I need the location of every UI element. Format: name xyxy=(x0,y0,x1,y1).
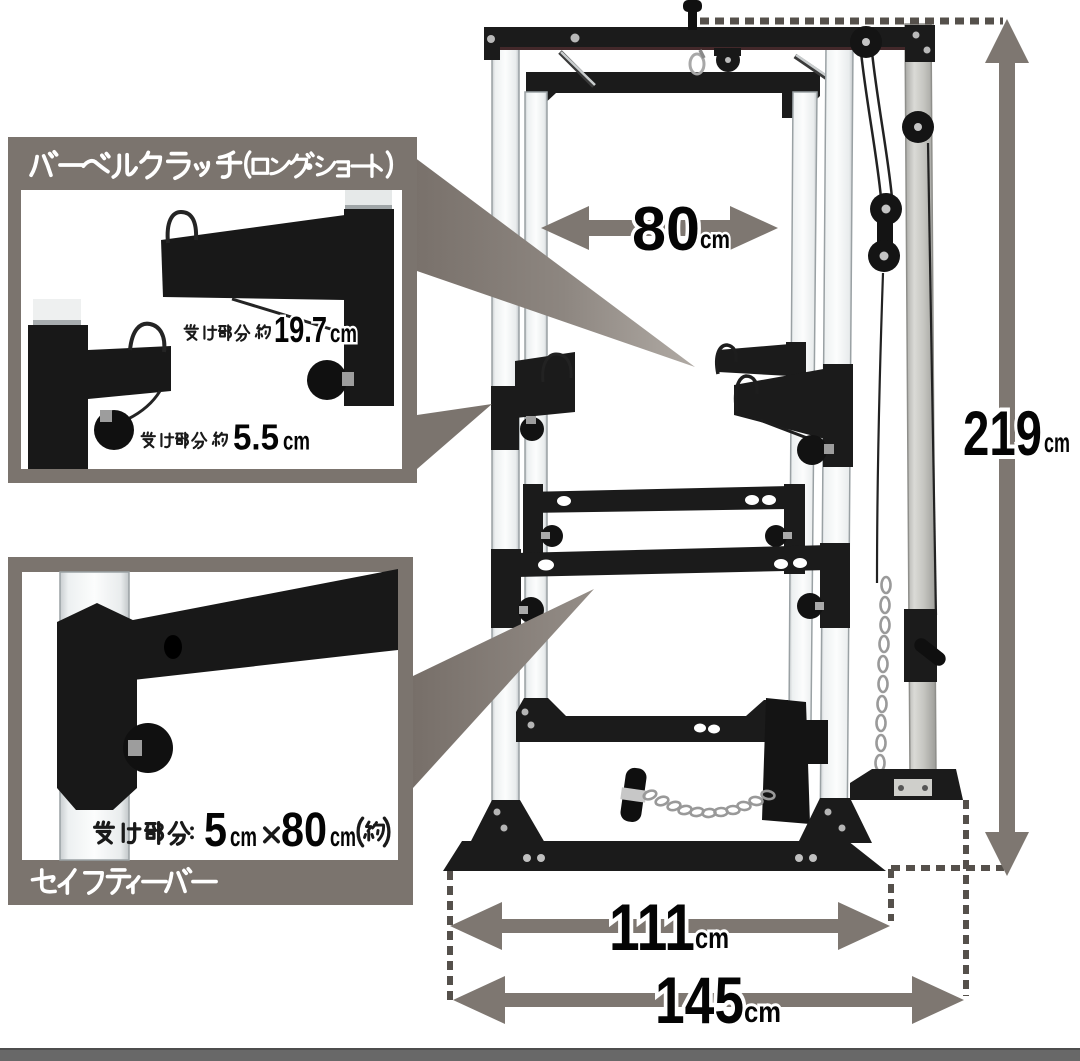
svg-text:5.5: 5.5 xyxy=(233,417,279,458)
svg-text:5: 5 xyxy=(204,804,227,857)
svg-text:80: 80 xyxy=(281,804,327,857)
svg-text:cm: cm xyxy=(330,318,357,348)
svg-text:111: 111 xyxy=(609,890,695,964)
svg-text:219: 219 xyxy=(963,399,1042,469)
svg-text:cm: cm xyxy=(1044,427,1070,458)
svg-text:cm: cm xyxy=(283,426,310,456)
svg-text:cm: cm xyxy=(744,996,781,1029)
svg-text:80: 80 xyxy=(632,195,700,264)
svg-text:cm: cm xyxy=(695,922,729,955)
svg-text:cm: cm xyxy=(230,821,257,852)
svg-text:cm: cm xyxy=(330,821,356,852)
svg-text:cm: cm xyxy=(700,224,730,254)
svg-text:145: 145 xyxy=(655,963,744,1037)
svg-text:19.7: 19.7 xyxy=(274,309,327,350)
